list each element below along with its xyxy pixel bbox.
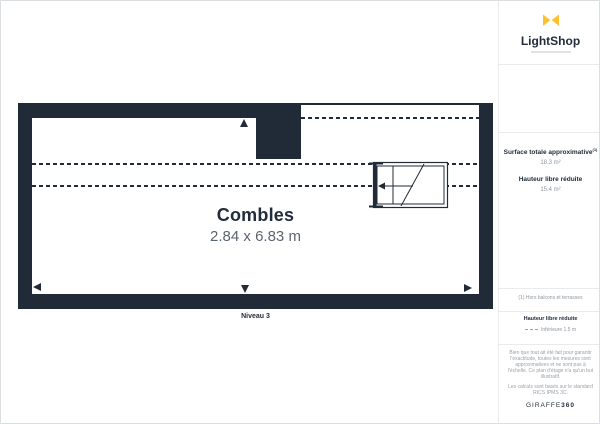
floorplan-canvas: Combles 2.84 x 6.83 m Niveau 3: [1, 1, 498, 424]
dimension-arrow-left: [33, 283, 41, 291]
giraffe360-logo: GIRAFFE360: [499, 402, 600, 409]
floorplan-page: Combles 2.84 x 6.83 m Niveau 3 LightShop…: [0, 0, 600, 424]
dimension-arrow-down: [241, 285, 249, 293]
disclaimer-text: Bien que tout ait été fait pour garantir…: [507, 350, 594, 380]
room-name: Combles: [32, 205, 479, 226]
standard-note: Les calculs sont basés sur le standard R…: [507, 384, 594, 396]
sidebar-divider: [499, 288, 600, 289]
sidebar-divider: [499, 64, 600, 65]
floorplan-level-3: Combles 2.84 x 6.83 m: [18, 103, 493, 309]
stat-label: Hauteur libre réduite: [499, 176, 600, 183]
wall-left: [18, 103, 32, 309]
brand-name: LightShop: [499, 34, 600, 48]
stat-label: Surface totale approximative(1): [499, 147, 600, 156]
stat-reduced-height-surface: Hauteur libre réduite 15.4 m²: [499, 176, 600, 193]
dashed-line-icon: [525, 329, 538, 330]
sidebar-divider: [499, 311, 600, 312]
room-dimensions: 2.84 x 6.83 m: [32, 228, 479, 245]
wall-right: [479, 103, 493, 309]
stat-value: 18.3 m²: [499, 160, 600, 166]
stat-total-surface: Surface totale approximative(1) 18.3 m²: [499, 147, 600, 166]
giraffe360-prefix: GIRAFFE: [526, 402, 561, 409]
level-label: Niveau 3: [18, 313, 493, 320]
surface-stats: Surface totale approximative(1) 18.3 m² …: [499, 147, 600, 193]
legend-title: Hauteur libre réduite: [499, 316, 600, 322]
wall-bottom: [18, 294, 493, 309]
info-sidebar: LightShop Surface totale approximative(1…: [498, 1, 600, 424]
stat-value: 15.4 m²: [499, 187, 600, 193]
lightshop-logo-icon: [541, 13, 561, 28]
dimension-arrow-right: [464, 284, 472, 292]
sidebar-divider: [499, 132, 600, 133]
legend: Hauteur libre réduite Inférieure 1.5 m: [499, 316, 600, 333]
staircase: [373, 162, 448, 208]
dimension-arrow-up: [240, 119, 248, 127]
legend-item-label: Inférieure 1.5 m: [541, 327, 576, 333]
giraffe360-suffix: 360: [561, 402, 575, 409]
lightshop-logo: LightShop: [499, 13, 600, 53]
footnote: (1) Hors balcons et terrasses: [499, 295, 600, 301]
sidebar-divider: [499, 344, 600, 345]
chimney-block: [256, 103, 301, 159]
legend-item: Inférieure 1.5 m: [499, 327, 600, 333]
reduced-height-line-upper: [301, 117, 479, 119]
logo-tagline: [531, 51, 571, 53]
